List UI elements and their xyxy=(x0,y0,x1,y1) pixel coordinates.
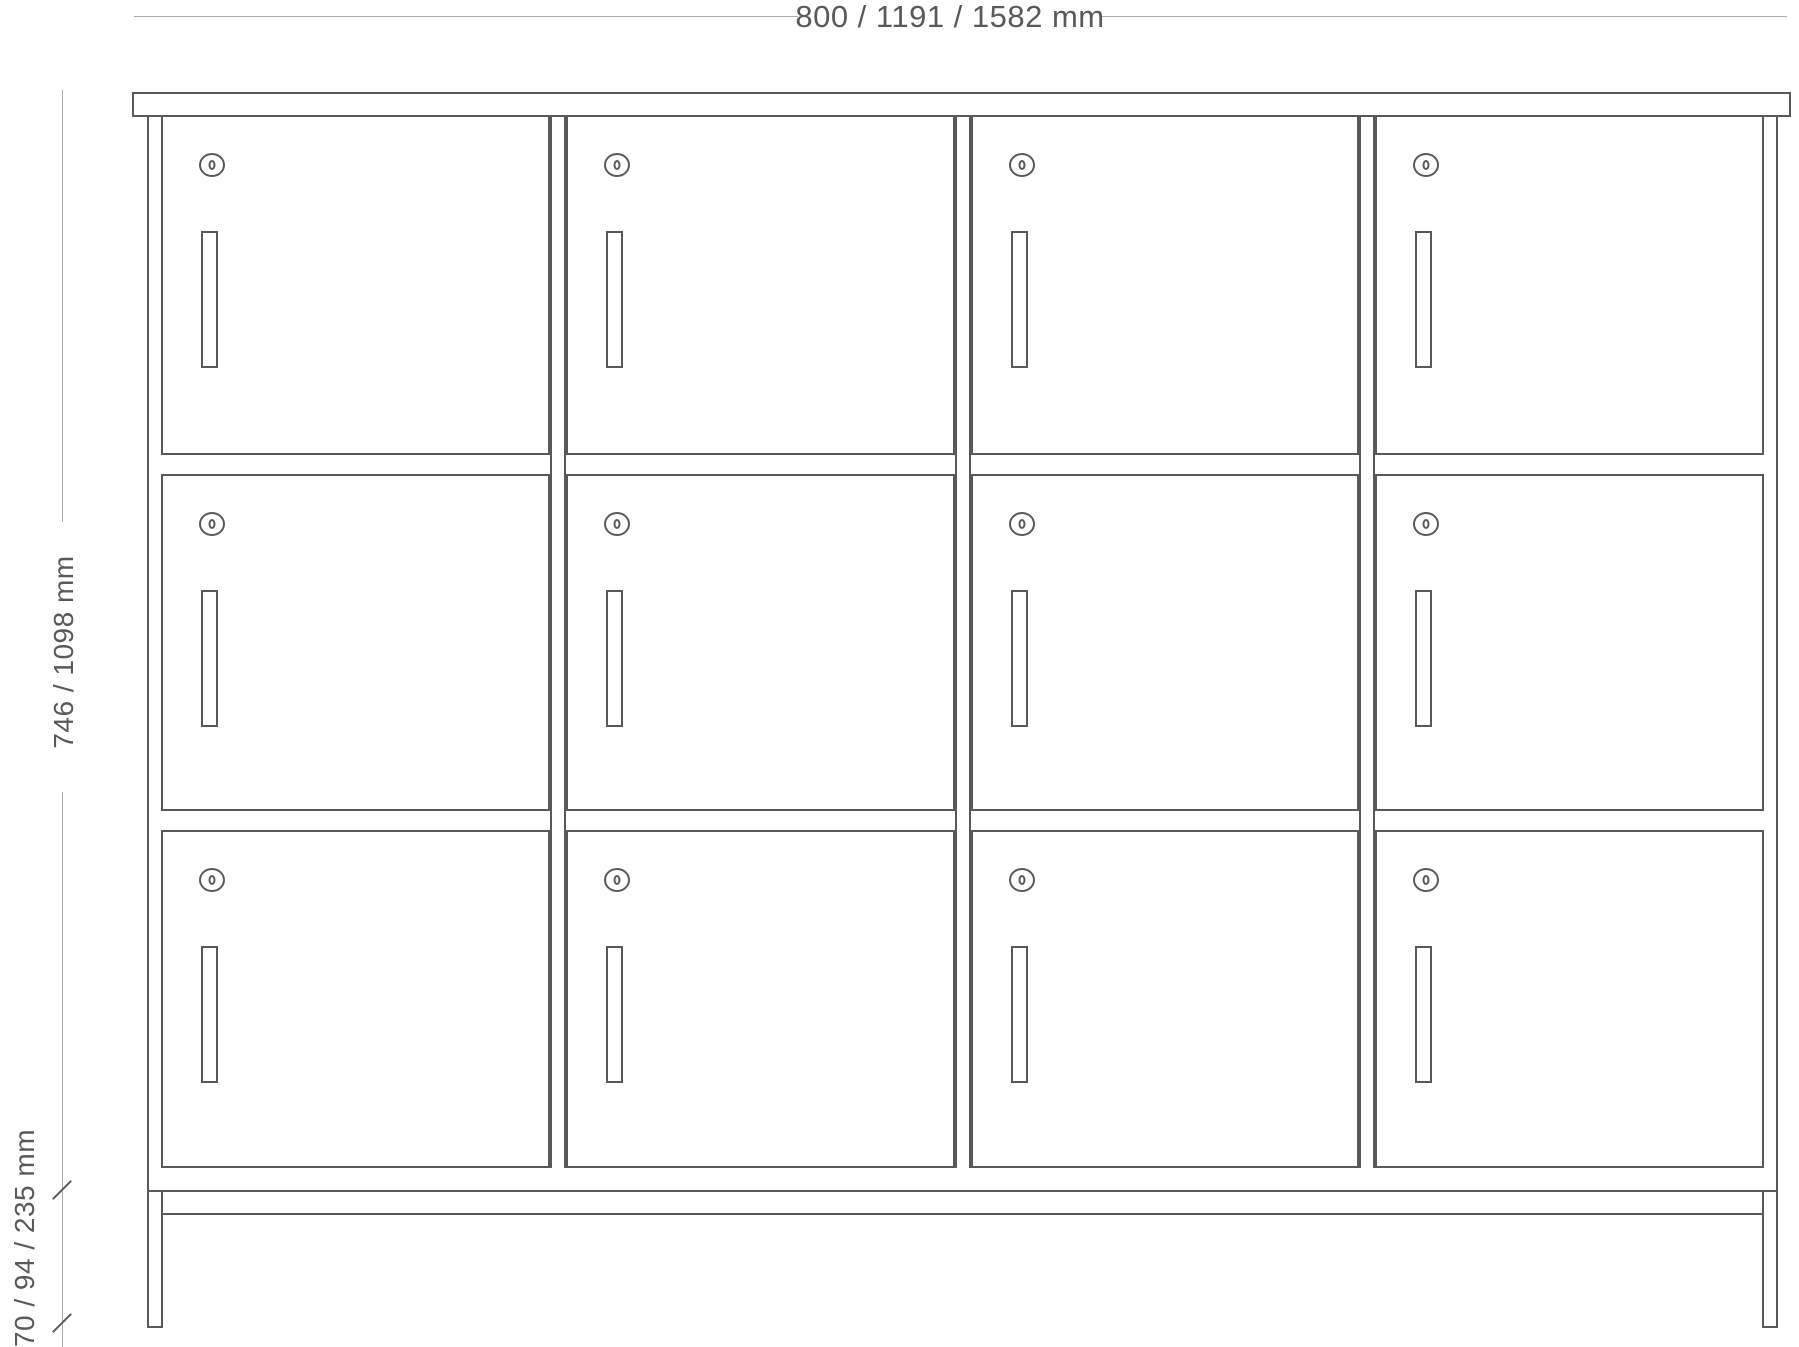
locker-door xyxy=(161,474,550,812)
keyhole-slot-icon xyxy=(1423,160,1430,170)
locker-door xyxy=(566,117,955,455)
locker-door xyxy=(566,830,955,1168)
width-dimension-line-right xyxy=(1102,16,1787,17)
keyhole-lock-icon xyxy=(199,512,225,536)
keyhole-slot-icon xyxy=(209,875,216,885)
height-dimension-label: 746 / 1098 mm xyxy=(48,555,80,748)
locker-door xyxy=(1375,830,1764,1168)
door-handle xyxy=(201,946,218,1083)
keyhole-slot-icon xyxy=(1018,875,1025,885)
keyhole-lock-icon xyxy=(604,868,630,892)
keyhole-lock-icon xyxy=(199,868,225,892)
locker-door xyxy=(971,830,1360,1168)
locker-door xyxy=(161,830,550,1168)
door-handle xyxy=(201,231,218,368)
keyhole-lock-icon xyxy=(1413,512,1439,536)
door-handle xyxy=(1011,590,1028,727)
keyhole-lock-icon xyxy=(604,153,630,177)
cabinet-top-panel xyxy=(132,92,1791,117)
keyhole-slot-icon xyxy=(1018,160,1025,170)
door-handle xyxy=(1011,946,1028,1083)
locker-door xyxy=(566,474,955,812)
door-handle xyxy=(1415,946,1432,1083)
keyhole-slot-icon xyxy=(1018,519,1025,529)
door-handle xyxy=(1415,231,1432,368)
keyhole-lock-icon xyxy=(604,512,630,536)
keyhole-slot-icon xyxy=(209,519,216,529)
cabinet-leg-left xyxy=(147,1192,163,1328)
keyhole-lock-icon xyxy=(1009,512,1035,536)
keyhole-slot-icon xyxy=(1423,875,1430,885)
keyhole-slot-icon xyxy=(209,160,216,170)
width-dimension-label: 800 / 1191 / 1582 mm xyxy=(795,0,1104,35)
keyhole-slot-icon xyxy=(613,160,620,170)
door-handle xyxy=(201,590,218,727)
keyhole-slot-icon xyxy=(613,875,620,885)
keyhole-lock-icon xyxy=(199,153,225,177)
cabinet-leg-right xyxy=(1762,1192,1778,1328)
base-height-dimension-label: 70 / 94 / 235 mm xyxy=(9,1129,41,1347)
door-handle xyxy=(1415,590,1432,727)
height-dimension-line xyxy=(62,90,63,522)
keyhole-lock-icon xyxy=(1009,153,1035,177)
column-divider xyxy=(955,117,971,1168)
locker-door xyxy=(1375,474,1764,812)
door-handle xyxy=(606,231,623,368)
locker-cabinet-drawing: 800 / 1191 / 1582 mm 746 / 1098 mm 70 / … xyxy=(0,0,1799,1347)
keyhole-slot-icon xyxy=(1423,519,1430,529)
door-handle xyxy=(606,946,623,1083)
keyhole-lock-icon xyxy=(1413,868,1439,892)
door-handle xyxy=(1011,231,1028,368)
keyhole-slot-icon xyxy=(613,519,620,529)
locker-door xyxy=(1375,117,1764,455)
door-handle xyxy=(606,590,623,727)
locker-door xyxy=(971,117,1360,455)
width-dimension-line-left xyxy=(134,16,798,17)
keyhole-lock-icon xyxy=(1009,868,1035,892)
base-height-dimension-line xyxy=(62,792,63,1347)
keyhole-lock-icon xyxy=(1413,153,1439,177)
cabinet-body xyxy=(147,117,1778,1192)
cabinet-base-rail xyxy=(163,1213,1762,1215)
column-divider xyxy=(1359,117,1375,1168)
locker-door xyxy=(161,117,550,455)
locker-door xyxy=(971,474,1360,812)
column-divider xyxy=(550,117,566,1168)
